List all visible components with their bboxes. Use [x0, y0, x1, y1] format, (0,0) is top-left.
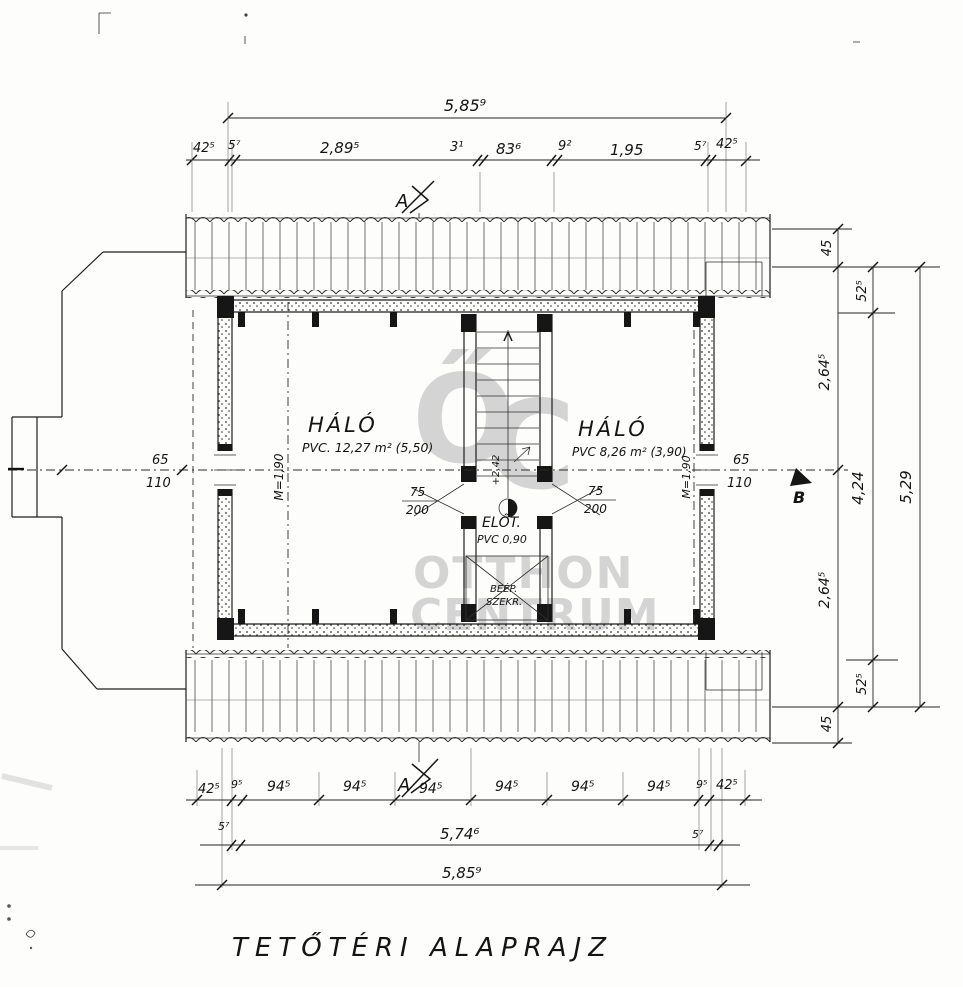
dim-b2-1: 5,74⁶ [440, 825, 479, 843]
bedroom-right-info: PVC 8,26 m² (3,90) [572, 445, 687, 459]
bottom-dimension-chain: 42⁵ 9⁵ 94⁵ 94⁵ 94⁵ 94⁵ 94⁵ 94⁵ 9⁵ 42⁵ 5⁷… [186, 748, 762, 890]
wardrobe-label-1: BEÉP. [490, 582, 517, 595]
dim-b1-4: 94⁵ [419, 781, 443, 797]
dim-b1-5: 94⁵ [495, 779, 519, 795]
dim-top-4: 83⁶ [496, 140, 521, 158]
window-right-size-num: 65 [733, 453, 750, 468]
roof-top-band [186, 214, 770, 298]
window-left-size-den: 110 [146, 476, 171, 491]
dim-right-mid-1: 4,24 [849, 471, 867, 504]
dim-top-1: 5⁷ [228, 138, 241, 152]
dim-right-total: 5,29 [897, 470, 915, 503]
section-marker-a-top: A [395, 181, 434, 218]
dim-top-8: 42⁵ [716, 137, 738, 152]
floor-plan-sheet: Ő C OTTHON CENTRUM [0, 0, 963, 987]
door-left-size-den: 200 [406, 503, 429, 517]
section-marker-b-right: B [790, 468, 812, 507]
dim-b1-6: 94⁵ [571, 779, 595, 795]
hall-name: ELŐT. [482, 513, 521, 531]
dim-right-mid-2: 52⁵ [855, 673, 870, 695]
bedroom-left-info: PVC. 12,27 m² (5,50) [302, 440, 433, 455]
top-dimension-chain: 5,85⁹ 42⁵ 5⁷ 2,89⁵ 3¹ 83⁶ 9² 1,95 5⁷ 42⁵ [186, 96, 760, 212]
door-right-size-den: 200 [584, 502, 607, 516]
roof-bottom-band [186, 650, 770, 742]
dim-b1-8: 9⁵ [696, 778, 707, 791]
dim-top-3: 3¹ [450, 140, 463, 155]
hall-info: PVC 0,90 [477, 533, 527, 546]
window-left-size-num: 65 [152, 453, 169, 468]
dim-top-total: 5,85⁹ [444, 96, 487, 115]
headroom-right-label: M=1,90 [680, 455, 693, 498]
dim-b1-0: 42⁵ [198, 782, 220, 797]
dim-b1-3: 94⁵ [343, 779, 367, 795]
dim-b1-1: 9⁵ [231, 778, 242, 791]
wardrobe-label-2: SZEKR. [486, 597, 522, 608]
dim-right-inner-0: 45 [820, 240, 835, 257]
dim-right-inner-1: 2,64⁵ [817, 353, 833, 390]
floor-plan-drawing: Ő C OTTHON CENTRUM [0, 0, 963, 987]
dim-b2-0: 5⁷ [218, 820, 230, 833]
left-annex-outline [12, 252, 193, 689]
door-right-size-num: 75 [588, 484, 603, 498]
dim-bottom-total: 5,85⁹ [442, 864, 481, 882]
dim-b1-2: 94⁵ [267, 779, 291, 795]
dim-top-7: 5⁷ [694, 139, 707, 153]
bedroom-right-name: HÁLÓ [578, 416, 648, 441]
headroom-left-label: M=1,90 [272, 453, 286, 500]
drawing-title: TETŐTÉRI ALAPRAJZ [232, 931, 613, 963]
dim-top-5: 9² [558, 139, 571, 154]
dim-right-inner-3: 45 [820, 716, 835, 733]
dim-b2-2: 5⁷ [692, 828, 704, 841]
dim-right-mid-0: 52⁵ [855, 280, 870, 302]
bedroom-left-name: HÁLÓ [308, 412, 378, 437]
dim-top-0: 42⁵ [193, 141, 215, 156]
right-dimension-chain: 45 2,64⁵ 2,64⁵ 45 52⁵ 4,24 52⁵ 5,29 [772, 224, 940, 748]
dim-b1-9: 42⁵ [716, 778, 738, 793]
svg-text:A: A [397, 775, 410, 796]
dim-top-2: 2,89⁵ [320, 139, 359, 157]
window-right-size-den: 110 [727, 476, 752, 491]
dim-right-inner-2: 2,64⁵ [817, 571, 833, 608]
dim-b1-7: 94⁵ [647, 779, 671, 795]
door-left-size-num: 75 [410, 485, 425, 499]
dim-top-6: 1,95 [610, 141, 643, 159]
svg-text:B: B [793, 488, 805, 507]
